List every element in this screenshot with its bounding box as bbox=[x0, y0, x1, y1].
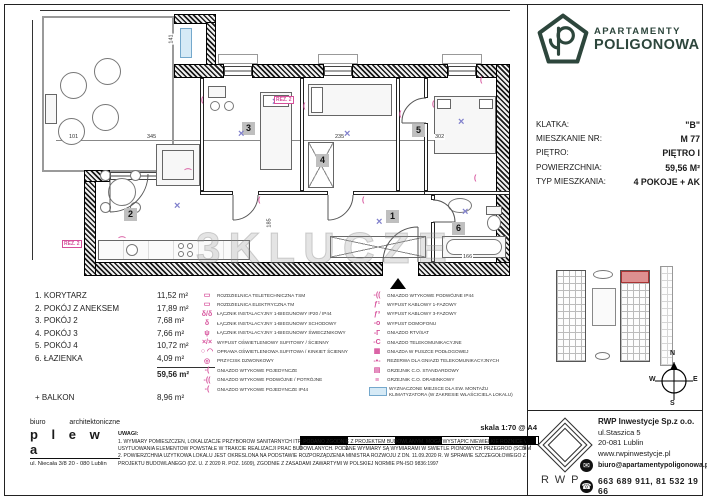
compass-s: S bbox=[670, 400, 675, 407]
legend-label: ROZDZIELNICA ELEKTRYCZNA TM bbox=[217, 302, 365, 308]
partition-wall bbox=[431, 195, 435, 200]
legend-symbol: δ bbox=[197, 320, 217, 327]
partition-wall bbox=[200, 78, 204, 191]
phone-row: ☎ 663 689 911, 81 532 19 66 bbox=[580, 476, 707, 496]
notes-line: PROJEKTU BUDOWLANEGO (DZ. U. Z 2020 R. P… bbox=[118, 461, 526, 468]
dining-chair bbox=[100, 170, 111, 181]
partition-wall bbox=[258, 191, 328, 195]
dining-chair bbox=[130, 170, 141, 181]
room-list-row: 5. POKÓJ 4 10,72 m² bbox=[35, 341, 215, 350]
watermark: 3KLUCZE bbox=[196, 224, 455, 274]
legend-row: δ/δ ŁĄCZNIK INSTALACYJNY 1-BIEGUNOWY IP2… bbox=[197, 311, 365, 318]
legend-symbol: -(( bbox=[197, 377, 217, 384]
pillow bbox=[311, 87, 323, 113]
info-label: TYP MIESZKANIA: bbox=[536, 177, 606, 187]
legend-row: ▭ ROZDZIELNICA ELEKTRYCZNA TM bbox=[197, 301, 365, 308]
legend-row: ≡ GRZEJNIK C.O. DRABINKOWY bbox=[367, 377, 525, 384]
window bbox=[448, 66, 476, 76]
rwp-logo-text: RWP bbox=[541, 474, 584, 486]
legend-symbol: ≡ bbox=[367, 377, 387, 384]
stove-burner bbox=[187, 251, 193, 257]
email-address: biuro@apartamentypoligonowa.pl bbox=[598, 462, 707, 469]
dimension-label: 101 bbox=[68, 134, 79, 140]
socket-symbol: ( bbox=[303, 104, 305, 110]
socket-symbol: ( bbox=[184, 168, 190, 170]
room-total-row: 59,56 m² bbox=[35, 367, 215, 379]
legend-row: -o WYPUST DOMOFONU bbox=[367, 320, 525, 327]
room-number-badge: 5 bbox=[412, 124, 425, 137]
developer-name: RWP Inwestycje Sp.z o.o. bbox=[598, 417, 694, 428]
socket-symbol: ( bbox=[474, 176, 476, 182]
stove-burner bbox=[187, 243, 193, 249]
legend-symbol: -Г bbox=[367, 330, 387, 337]
floor-plan: 123456 101345235302141185166 ××××××× (((… bbox=[28, 8, 520, 293]
light-outlet-mark: × bbox=[344, 130, 350, 139]
brand-line2: POLIGONOWA bbox=[594, 37, 700, 53]
room-list-row: 1. KORYTARZ 11,52 m² bbox=[35, 291, 215, 300]
wall bbox=[352, 64, 448, 78]
highlighted-unit bbox=[621, 271, 649, 283]
info-label: POWIERZCHNIA: bbox=[536, 163, 602, 173]
room-name: 1. KORYTARZ bbox=[35, 291, 157, 300]
rez-label: REZ. 2 bbox=[274, 96, 294, 104]
legend-label: WYZNACZONE MIEJSCE DLA EW. MONTAŻU KLIMA… bbox=[389, 386, 525, 397]
legend-label: GNIAZDO TELEKOMUNIKACYJNE bbox=[387, 340, 525, 346]
dimension-label: 166 bbox=[462, 254, 473, 260]
wall bbox=[174, 64, 224, 78]
architect-address: ul. Niecała 3/8 20 - 080 Lublin bbox=[30, 461, 120, 467]
legend-label: REZERWA DLA GNIAZD TELEKOMUNIKACYJNYCH bbox=[387, 358, 525, 364]
legend-label: ROZDZIELNICA TELETECHNICZNA TSM bbox=[217, 293, 365, 299]
legend-symbol: ▦ bbox=[367, 348, 387, 355]
partition-wall bbox=[200, 191, 233, 195]
legend-label: WYPUST KABLOWY 1-FAZOWY bbox=[387, 302, 525, 308]
site-feature bbox=[593, 270, 613, 279]
room-name: 3. POKÓJ 2 bbox=[35, 316, 157, 325]
legend-row: -(( GNIAZDO WTYKOWE PODWÓJNE / POTRÓJNE bbox=[197, 377, 365, 384]
legend-symbol: ψ bbox=[197, 330, 217, 337]
room-number-badge: 2 bbox=[124, 208, 137, 221]
legend-row: -Г GNIAZDO RTV/SAT bbox=[367, 330, 525, 337]
socket-symbol: ( bbox=[201, 98, 203, 104]
room-list-row: 3. POKÓJ 2 7,68 m² bbox=[35, 316, 215, 325]
legend-row: ψ ŁĄCZNIK INSTALACYJNY 1-BIEGUNOWY ŚWIEC… bbox=[197, 330, 365, 337]
legend-symbol: -( bbox=[197, 367, 217, 374]
legend-row: δ ŁĄCZNIK INSTALACYJNY 1-BIEGUNOWY SCHOD… bbox=[197, 320, 365, 327]
wall bbox=[252, 64, 324, 78]
legend-symbol: ◎ bbox=[197, 358, 217, 365]
legend-symbol: ƒ¹ bbox=[367, 301, 387, 308]
room-list-row: 6. ŁAZIENKA 4,09 m² bbox=[35, 354, 215, 363]
legend-label: ŁĄCZNIK INSTALACYJNY 1-BIEGUNOWY IP20 / … bbox=[217, 311, 365, 317]
toilet bbox=[486, 206, 502, 215]
compass: N E S W bbox=[650, 352, 698, 410]
notes-line: 1. WYMIARY POMIESZCZEŃ, LOKALIZACJE PRZY… bbox=[118, 439, 526, 446]
info-row: PIĘTRO: PIĘTRO I bbox=[536, 148, 700, 158]
email-row: ✉ biuro@apartamentypoligonowa.pl bbox=[580, 459, 707, 472]
toilet-bowl bbox=[487, 215, 501, 231]
legend-label: GNIAZDO WTYKOWE PODWÓJNE / POTRÓJNE bbox=[217, 377, 365, 383]
dimension-label: 302 bbox=[434, 134, 445, 140]
developer-website: www.rwpinwestycje.pl bbox=[598, 449, 694, 460]
developer-block: RWP Inwestycje Sp.z o.o. ul.Staszica 5 2… bbox=[598, 417, 694, 459]
window bbox=[324, 66, 352, 76]
legend-symbol: δ/δ bbox=[197, 311, 217, 318]
balcony-table bbox=[45, 94, 57, 124]
info-row: TYP MIESZKANIA: 4 POKOJE + AK bbox=[536, 177, 700, 187]
legend-column-1: ▭ ROZDZIELNICA TELETECHNICZNA TSM ▭ ROZD… bbox=[197, 292, 365, 395]
balcony-row: + BALKON 8,96 m² bbox=[35, 393, 215, 402]
room-name: 4. POKÓJ 3 bbox=[35, 329, 157, 338]
wall bbox=[206, 22, 216, 66]
light-outlet-mark: × bbox=[174, 202, 180, 211]
footer-divider bbox=[528, 410, 703, 411]
legend-label: GRZEJNIK C.O. STANDARDOWY bbox=[387, 368, 525, 374]
legend-symbol: -o bbox=[367, 320, 387, 327]
legend-row: ƒ¹ WYPUST KABLOWY 1-FAZOWY bbox=[367, 301, 525, 308]
legend-row: ▤ GRZEJNIK C.O. STANDARDOWY bbox=[367, 367, 525, 374]
compass-n: N bbox=[670, 350, 675, 357]
legend-symbol: ƒ³ bbox=[367, 311, 387, 318]
room-list: 1. KORYTARZ 11,52 m² 2. POKÓJ Z ANEKSEM … bbox=[35, 291, 215, 402]
legend-symbol: -(( bbox=[367, 292, 387, 299]
room-list-row: 2. POKÓJ Z ANEKSEM 17,89 m² bbox=[35, 304, 215, 313]
stove-burner bbox=[178, 243, 184, 249]
entrance-arrow bbox=[390, 278, 406, 289]
legend-label: GNIAZDO RTV/SAT bbox=[387, 330, 525, 336]
site-building-left bbox=[556, 270, 586, 362]
legend-column-2: -(( GNIAZDO WTYKOWE PODWÓJNE IP44 ƒ¹ WYP… bbox=[367, 292, 525, 400]
notes-line: USYTUOWANIA ELEMENTÓW POWSTAŁE W TRAKCIE… bbox=[118, 446, 526, 453]
legend-label: WYPUST OŚWIETLENIOWY SUFITOWY / ŚCIENNY bbox=[217, 340, 365, 346]
site-feature bbox=[595, 352, 610, 360]
brand-name: APARTAMENTY POLIGONOWA bbox=[594, 26, 700, 53]
socket-symbol: ( bbox=[480, 78, 482, 84]
info-label: MIESZKANIE NR: bbox=[536, 134, 602, 144]
legend-label: OPRAWA OŚWIETLENIOWA SUFITOWA / KINKIET … bbox=[217, 349, 365, 355]
info-label: KLATKA: bbox=[536, 120, 569, 130]
phone-numbers: 663 689 911, 81 532 19 66 bbox=[598, 476, 707, 496]
info-value: 59,56 M² bbox=[665, 163, 700, 173]
balcony-chair bbox=[92, 104, 119, 131]
legend-symbol: -( bbox=[197, 386, 217, 393]
legend-label: GNIAZDA W PUSZCE PODŁOGOWEJ bbox=[387, 349, 525, 355]
legend-label: GNIAZDO WTYKOWE POJEDYNCZE bbox=[217, 368, 365, 374]
info-value: M 77 bbox=[680, 134, 700, 144]
socket-symbol: ( bbox=[432, 102, 434, 108]
legend-row: ◎ PRZYCISK DZWONKOWY bbox=[197, 358, 365, 365]
legend-row: -•- REZERWA DLA GNIAZD TELEKOMUNIKACYJNY… bbox=[367, 358, 525, 365]
partition-wall bbox=[424, 78, 428, 98]
legend-symbol: ▭ bbox=[197, 292, 217, 299]
rez-label: REZ. 2 bbox=[62, 240, 82, 248]
socket-symbol: ( bbox=[399, 112, 401, 118]
partition-wall bbox=[353, 191, 428, 195]
legend-label: GRZEJNIK C.O. DRABINKOWY bbox=[387, 377, 525, 383]
legend-label: GNIAZDO WTYKOWE PODWÓJNE IP44 bbox=[387, 293, 525, 299]
chair bbox=[210, 101, 220, 111]
dining-chair bbox=[100, 202, 111, 213]
wall bbox=[84, 170, 96, 276]
legend-symbol: -C bbox=[367, 339, 387, 346]
site-courtyard bbox=[592, 288, 616, 326]
socket-symbol: ( bbox=[258, 198, 260, 204]
info-value: 4 POKOJE + AK bbox=[634, 177, 700, 187]
architect-block: biuro architektoniczne p l e w a ul. Nie… bbox=[30, 419, 120, 467]
legend-symbol: ▭ bbox=[197, 301, 217, 308]
compass-e: E bbox=[693, 376, 698, 383]
legend-row: ×/× WYPUST OŚWIETLENIOWY SUFITOWY / ŚCIE… bbox=[197, 339, 365, 346]
table bbox=[208, 86, 226, 98]
top-dimension-line bbox=[40, 10, 510, 11]
site-building-right bbox=[620, 270, 650, 362]
chair bbox=[224, 101, 234, 111]
notes: UWAGI: 1. WYMIARY POMIESZCZEŃ, LOKALIZAC… bbox=[118, 431, 526, 468]
balcony-chair bbox=[58, 118, 85, 145]
email-icon: ✉ bbox=[580, 459, 593, 472]
light-outlet-mark: × bbox=[238, 130, 244, 139]
legend-label: WYPUST DOMOFONU bbox=[387, 321, 525, 327]
stove-burner bbox=[178, 251, 184, 257]
legend-symbol: -•- bbox=[367, 358, 387, 365]
info-row: KLATKA: "B" bbox=[536, 120, 700, 130]
phone-icon: ☎ bbox=[580, 480, 593, 493]
info-value: "B" bbox=[685, 120, 700, 130]
socket-symbol: ( bbox=[362, 198, 364, 204]
balcony-chair bbox=[60, 72, 87, 99]
brand-line1: APARTAMENTY bbox=[594, 26, 700, 37]
legend-symbol bbox=[369, 387, 387, 396]
legend-row: WYZNACZONE MIEJSCE DLA EW. MONTAŻU KLIMA… bbox=[367, 386, 525, 397]
legend-row: ▭ ROZDZIELNICA TELETECHNICZNA TSM bbox=[197, 292, 365, 299]
notes-line: 2. POWIERZCHNIA UŻYTKOWA LOKALU JEST OKR… bbox=[118, 453, 526, 460]
room-name: 2. POKÓJ Z ANEKSEM bbox=[35, 304, 157, 313]
kitchen-sink bbox=[126, 244, 138, 256]
legend-row: -(( GNIAZDO WTYKOWE PODWÓJNE IP44 bbox=[367, 292, 525, 299]
legend-row: -( GNIAZDO WTYKOWE POJEDYNCZE bbox=[197, 367, 365, 374]
dimension-label: 345 bbox=[146, 134, 157, 140]
light-outlet-mark: × bbox=[458, 118, 464, 127]
info-row: POWIERZCHNIA: 59,56 M² bbox=[536, 163, 700, 173]
legend-row: ○ ◠ OPRAWA OŚWIETLENIOWA SUFITOWA / KINK… bbox=[197, 348, 365, 355]
dimension-label: 141 bbox=[169, 33, 175, 44]
room-list-row: 4. POKÓJ 3 7,66 m² bbox=[35, 329, 215, 338]
architect-name: p l e w a bbox=[30, 427, 120, 459]
pillow bbox=[437, 99, 451, 109]
ac-unit-spot bbox=[180, 28, 192, 58]
compass-w: W bbox=[649, 376, 656, 383]
developer-address2: 20-081 Lublin bbox=[598, 438, 694, 449]
info-label: PIĘTRO: bbox=[536, 148, 569, 158]
partition-wall bbox=[300, 78, 304, 191]
architect-word2: architektoniczne bbox=[69, 419, 120, 426]
legend-symbol: ○ ◠ bbox=[197, 348, 217, 355]
window-sill bbox=[318, 54, 358, 64]
socket-symbol: ( bbox=[118, 236, 124, 238]
legend-row: -C GNIAZDO TELEKOMUNIKACYJNE bbox=[367, 339, 525, 346]
legend-symbol: ×/× bbox=[197, 339, 217, 346]
info-row: MIESZKANIE NR: M 77 bbox=[536, 134, 700, 144]
partition-wall bbox=[396, 78, 400, 191]
legend-row: ▦ GNIAZDA W PUSZCE PODŁOGOWEJ bbox=[367, 348, 525, 355]
legend-label: PRZYCISK DZWONKOWY bbox=[217, 358, 365, 364]
pillow bbox=[479, 99, 493, 109]
developer-address1: ul.Staszica 5 bbox=[598, 428, 694, 439]
room-name: 6. ŁAZIENKA bbox=[35, 354, 157, 363]
room-name: 5. POKÓJ 4 bbox=[35, 341, 157, 350]
legend-row: -( GNIAZDO WTYKOWE POJEDYNCZE IP44 bbox=[197, 386, 365, 393]
light-outlet-mark: × bbox=[462, 208, 468, 217]
apartment-info: KLATKA: "B" MIESZKANIE NR: M 77 PIĘTRO: … bbox=[536, 120, 700, 191]
legend-label: WYPUST KABLOWY 3-FAZOWY bbox=[387, 311, 525, 317]
brand-logo-icon bbox=[536, 12, 590, 66]
left-dimension-line bbox=[32, 20, 33, 260]
legend-label: ŁĄCZNIK INSTALACYJNY 1-BIEGUNOWY SCHODOW… bbox=[217, 321, 365, 327]
notes-title: UWAGI: bbox=[118, 431, 526, 439]
window-sill bbox=[218, 54, 258, 64]
sofa-cushion bbox=[162, 150, 194, 180]
window bbox=[224, 66, 252, 76]
balcony-chair bbox=[94, 58, 121, 85]
architect-word1: biuro bbox=[30, 419, 46, 426]
room-number-badge: 1 bbox=[386, 210, 399, 223]
legend-symbol: ▤ bbox=[367, 367, 387, 374]
info-value: PIĘTRO I bbox=[662, 148, 700, 158]
window-sill bbox=[442, 54, 482, 64]
legend-label: GNIAZDO WTYKOWE POJEDYNCZE IP44 bbox=[217, 387, 365, 393]
balcony-label: + BALKON bbox=[35, 393, 157, 402]
partition-wall bbox=[424, 191, 510, 195]
legend-label: ŁĄCZNIK INSTALACYJNY 1-BIEGUNOWY ŚWIECZN… bbox=[217, 330, 365, 336]
balcony bbox=[42, 16, 174, 172]
legend-row: ƒ³ WYPUST KABLOWY 3-FAZOWY bbox=[367, 311, 525, 318]
room-number-badge: 4 bbox=[316, 154, 329, 167]
